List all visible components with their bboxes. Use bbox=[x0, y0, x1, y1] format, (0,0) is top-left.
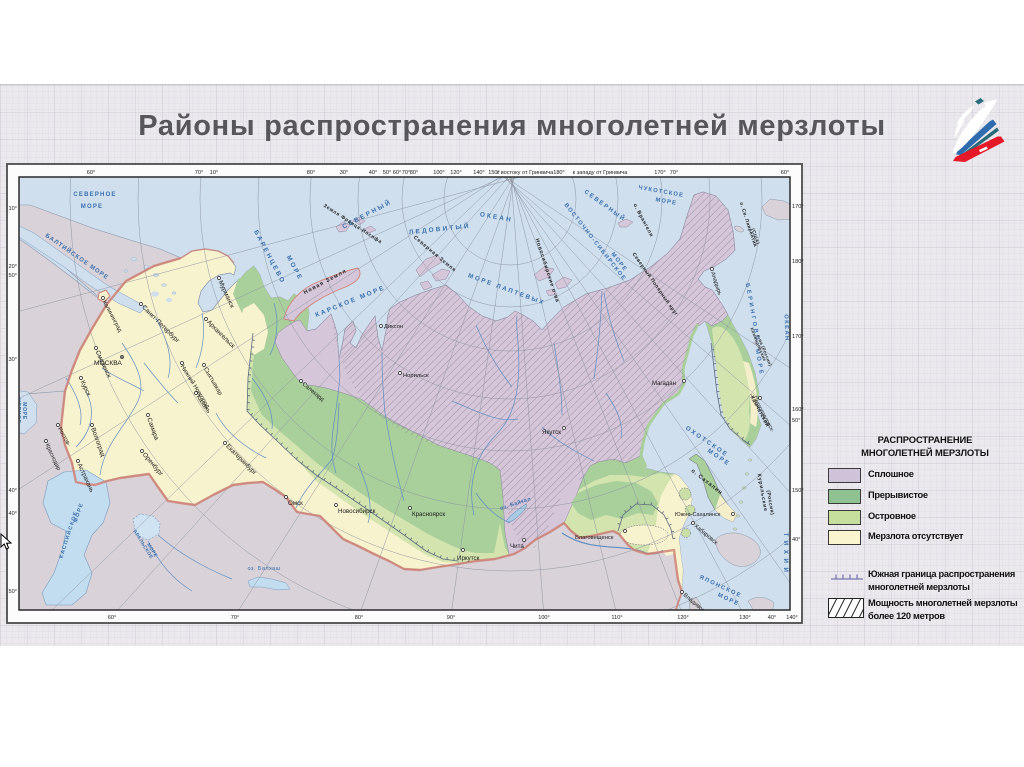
svg-text:40°: 40° bbox=[792, 537, 800, 543]
svg-text:ОКЕАН: ОКЕАН bbox=[783, 314, 790, 341]
svg-text:Норильск: Норильск bbox=[403, 373, 429, 379]
svg-text:140°: 140° bbox=[786, 615, 798, 621]
svg-text:70°: 70° bbox=[195, 170, 203, 176]
svg-text:90°: 90° bbox=[447, 615, 455, 621]
svg-text:70°: 70° bbox=[670, 170, 678, 176]
svg-text:80°: 80° bbox=[410, 170, 418, 176]
svg-text:10°: 10° bbox=[9, 206, 17, 212]
svg-text:140°: 140° bbox=[473, 170, 485, 176]
svg-text:Иркутск: Иркутск bbox=[457, 555, 480, 562]
svg-text:180°: 180° bbox=[553, 170, 565, 176]
svg-text:120°: 120° bbox=[677, 615, 689, 621]
svg-text:МОРЕ: МОРЕ bbox=[81, 204, 103, 210]
svg-text:100°: 100° bbox=[538, 615, 550, 621]
svg-text:50°: 50° bbox=[9, 273, 17, 279]
svg-text:к востоку от Гринвича: к востоку от Гринвича bbox=[497, 170, 554, 176]
svg-text:40°: 40° bbox=[9, 488, 17, 494]
svg-text:Диксон: Диксон bbox=[384, 324, 403, 330]
svg-text:Красноярск: Красноярск bbox=[412, 511, 445, 518]
svg-text:Якутск: Якутск bbox=[542, 429, 561, 436]
svg-text:20°: 20° bbox=[9, 264, 17, 270]
svg-text:70°: 70° bbox=[231, 615, 239, 621]
svg-text:40°: 40° bbox=[9, 511, 17, 517]
svg-text:Южно-Сахалинск: Южно-Сахалинск bbox=[675, 512, 721, 518]
svg-text:160°: 160° bbox=[792, 407, 804, 413]
svg-text:150°: 150° bbox=[792, 488, 804, 494]
svg-text:170°: 170° bbox=[792, 204, 804, 210]
svg-text:30°: 30° bbox=[340, 170, 348, 176]
svg-text:50°: 50° bbox=[9, 589, 17, 595]
svg-text:40°: 40° bbox=[369, 170, 377, 176]
svg-text:110°: 110° bbox=[611, 615, 622, 621]
svg-text:100°: 100° bbox=[433, 170, 445, 176]
svg-text:170°: 170° bbox=[654, 170, 666, 176]
svg-text:80°: 80° bbox=[355, 615, 363, 621]
svg-text:10°: 10° bbox=[210, 170, 218, 176]
svg-text:180°: 180° bbox=[792, 259, 804, 265]
svg-text:Т И Х И Й: Т И Х И Й bbox=[782, 533, 790, 574]
svg-text:Новосибирск: Новосибирск bbox=[338, 508, 376, 515]
svg-text:оз. Балхаш: оз. Балхаш bbox=[247, 566, 280, 572]
svg-text:30°: 30° bbox=[9, 357, 17, 363]
svg-text:СЕВЕРНОЕ: СЕВЕРНОЕ bbox=[73, 192, 116, 198]
svg-text:к западу от Гринвича: к западу от Гринвича bbox=[573, 170, 629, 176]
svg-text:120°: 120° bbox=[450, 170, 462, 176]
svg-text:170°: 170° bbox=[792, 334, 804, 340]
svg-text:60°: 60° bbox=[87, 170, 95, 176]
svg-text:Омск: Омск bbox=[288, 500, 303, 507]
svg-text:60°: 60° bbox=[393, 170, 401, 176]
svg-text:МОРЕ: МОРЕ bbox=[21, 402, 27, 420]
svg-text:50°: 50° bbox=[792, 418, 800, 424]
svg-text:40°: 40° bbox=[768, 615, 776, 621]
svg-text:Благовещенск: Благовещенск bbox=[575, 535, 614, 541]
svg-text:60°: 60° bbox=[781, 170, 789, 176]
svg-text:50°: 50° bbox=[383, 170, 391, 176]
svg-text:60°: 60° bbox=[108, 615, 116, 621]
svg-text:130°: 130° bbox=[739, 615, 751, 621]
svg-text:Чита: Чита bbox=[510, 543, 524, 550]
svg-text:80°: 80° bbox=[307, 170, 315, 176]
svg-text:Магадан: Магадан bbox=[652, 381, 676, 387]
